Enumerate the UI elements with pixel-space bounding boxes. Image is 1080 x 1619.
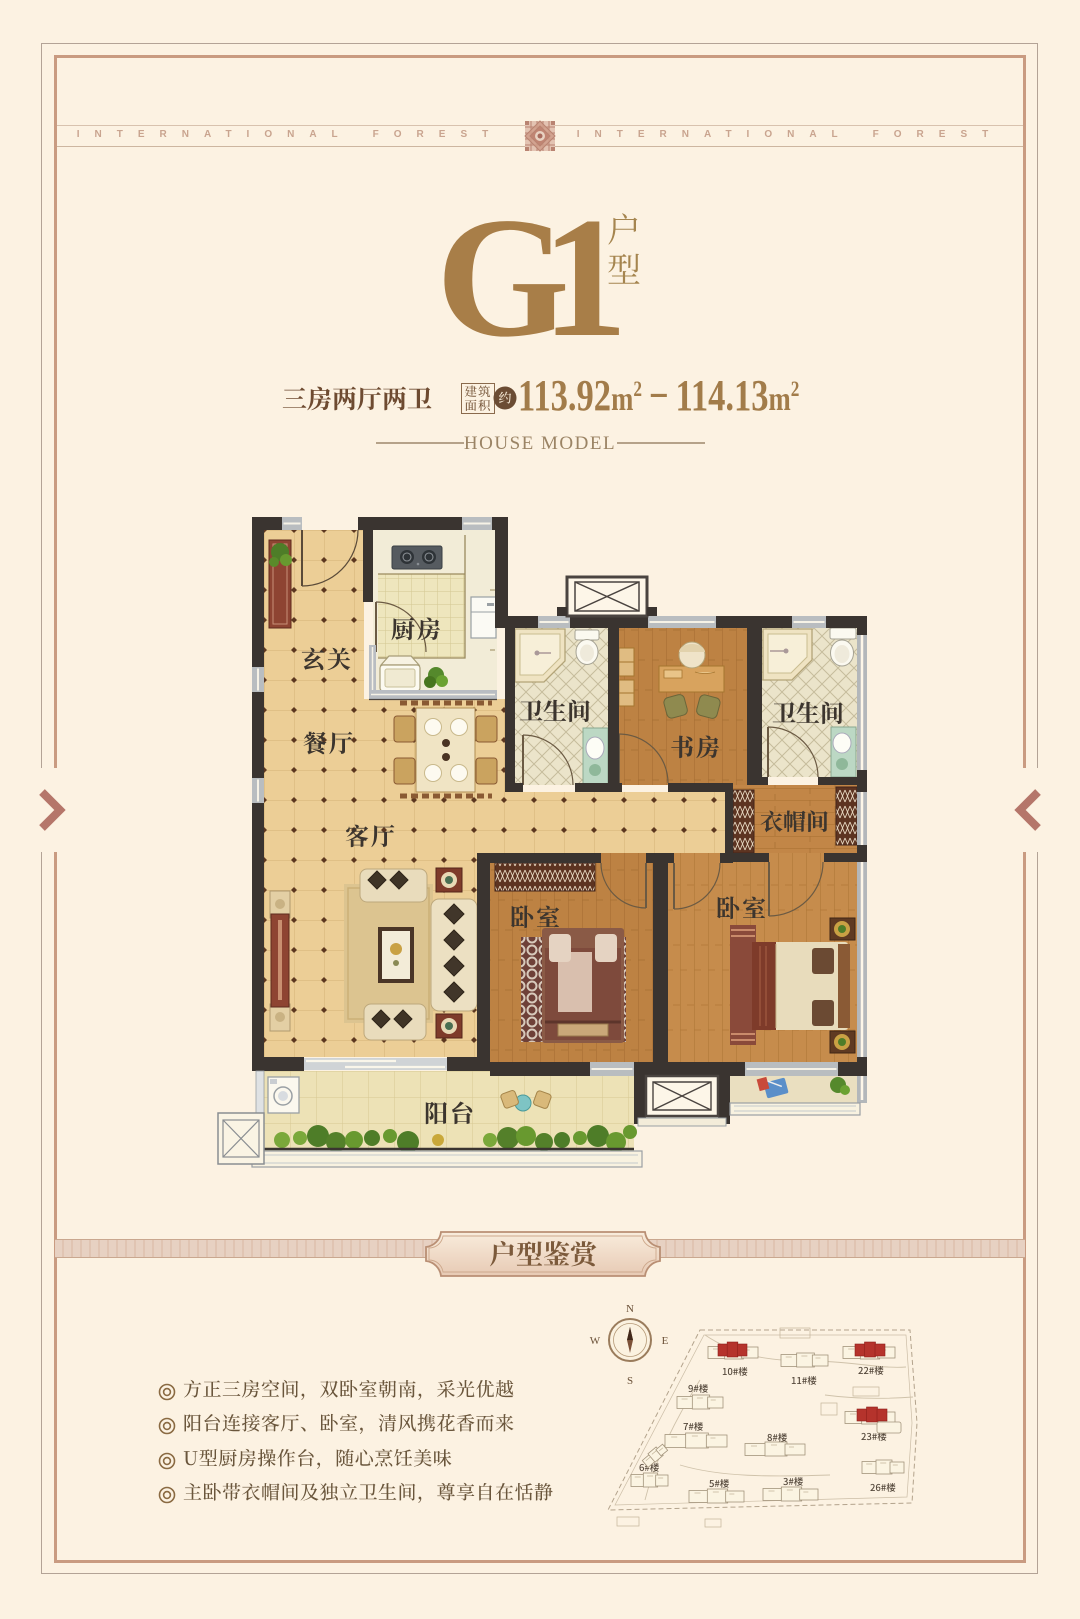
svg-text:W: W [590, 1335, 601, 1347]
svg-text:E: E [662, 1335, 669, 1347]
svg-text:S: S [627, 1375, 633, 1387]
svg-text:N: N [626, 1303, 634, 1315]
